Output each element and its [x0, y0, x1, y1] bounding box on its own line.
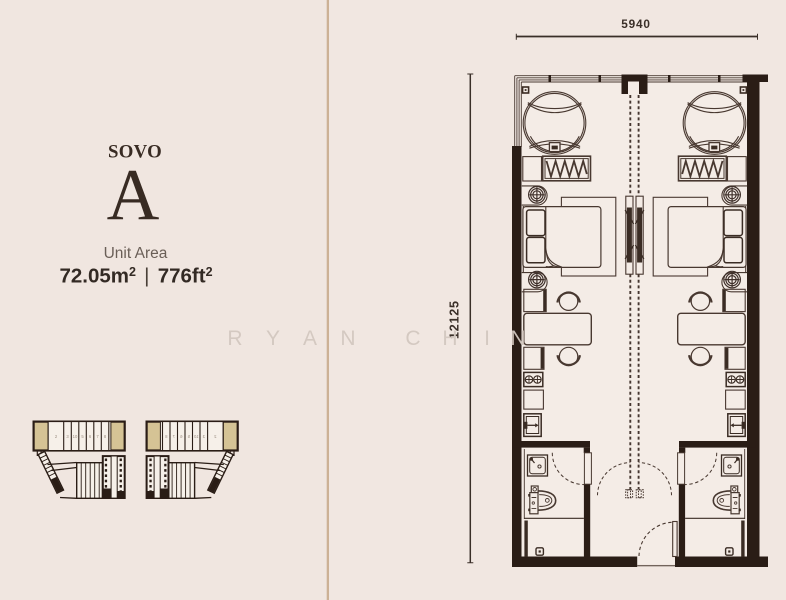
- svg-text:5940: 5940: [621, 17, 650, 31]
- svg-text:I: I: [484, 327, 490, 350]
- svg-text:N: N: [340, 327, 355, 350]
- svg-text:72.05m2 | 776ft2: 72.05m2 | 776ft2: [59, 265, 212, 288]
- svg-text:A: A: [107, 154, 160, 235]
- svg-text:Y: Y: [266, 327, 280, 350]
- svg-text:C: C: [405, 327, 420, 350]
- svg-text:Unit Area: Unit Area: [104, 245, 168, 262]
- svg-text:10: 10: [193, 434, 198, 439]
- svg-text:H: H: [442, 327, 457, 350]
- svg-text:N: N: [510, 327, 525, 350]
- svg-text:A: A: [303, 327, 317, 350]
- svg-text:R: R: [227, 327, 242, 350]
- svg-text:10: 10: [73, 434, 78, 439]
